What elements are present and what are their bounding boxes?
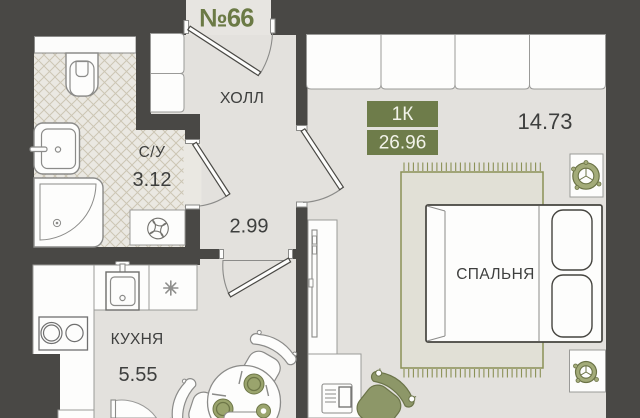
svg-text:2.99: 2.99 (230, 216, 269, 238)
svg-text:СПАЛЬНЯ: СПАЛЬНЯ (456, 266, 535, 283)
svg-text:1К: 1К (392, 104, 414, 125)
svg-text:14.73: 14.73 (517, 109, 572, 134)
svg-text:№66: №66 (199, 5, 254, 33)
svg-text:5.55: 5.55 (119, 364, 158, 386)
svg-text:26.96: 26.96 (379, 133, 427, 154)
svg-text:3.12: 3.12 (133, 169, 172, 191)
svg-text:КУХНЯ: КУХНЯ (111, 331, 164, 348)
svg-text:С/У: С/У (139, 144, 166, 161)
svg-text:ХОЛЛ: ХОЛЛ (220, 90, 264, 107)
